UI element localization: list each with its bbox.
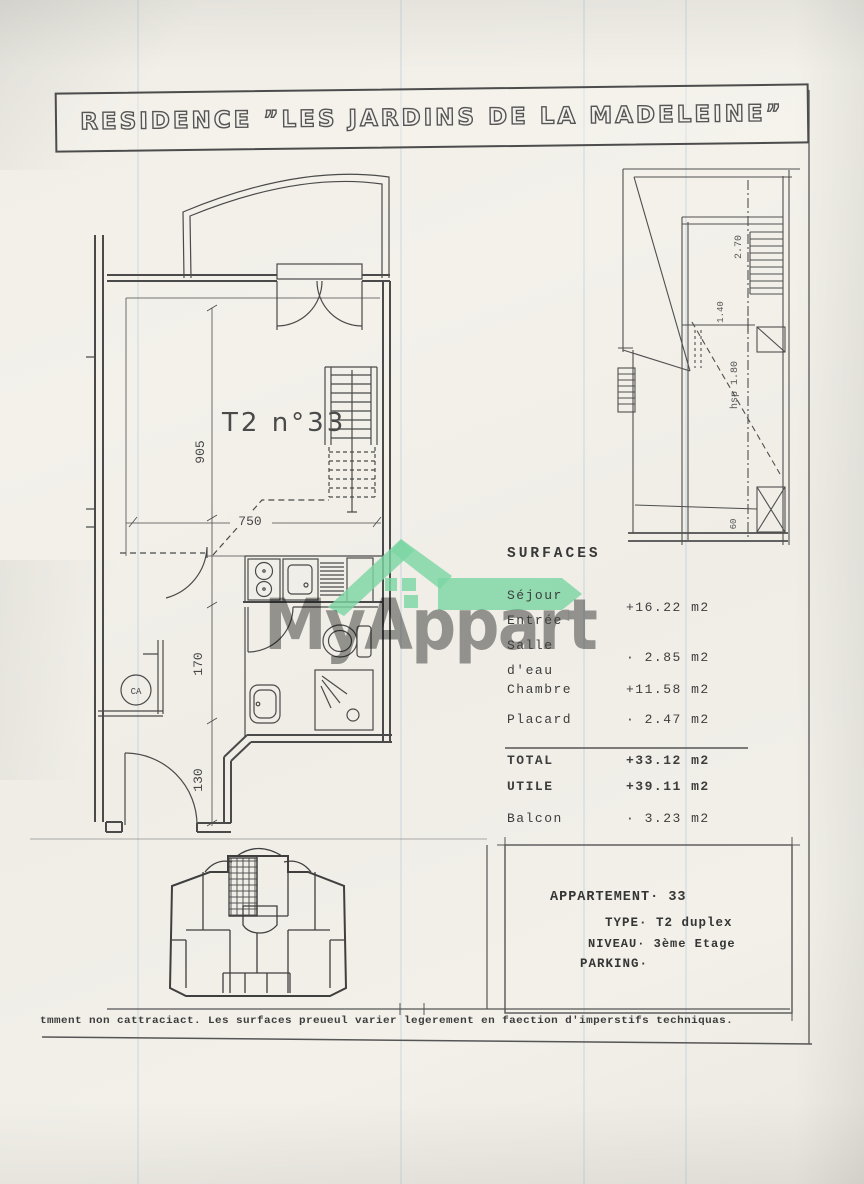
surface-row-label: Salle bbox=[507, 638, 554, 653]
upper-plan-dimensions: 2.70 1.40 hsp 1.80 60 bbox=[716, 235, 745, 529]
apartment-number-row: APPARTEMENT· 33 bbox=[550, 890, 687, 905]
main-plan-dimensions: 750 905 170 130 CA bbox=[131, 440, 272, 791]
total-row-value: +39.11 m2 bbox=[626, 779, 710, 794]
key-plan bbox=[170, 849, 346, 997]
total-row-label: TOTAL bbox=[507, 753, 554, 768]
water-heater-label: CA bbox=[131, 687, 142, 697]
surface-row-value: · 2.85 m2 bbox=[626, 650, 710, 665]
surface-row-label: Chambre bbox=[507, 682, 572, 697]
surface-row-label: Placard bbox=[507, 712, 572, 727]
type-label: TYPE· bbox=[605, 916, 648, 930]
total-row-label: UTILE bbox=[507, 779, 554, 794]
dim-130: 130 bbox=[191, 768, 206, 791]
upper-plan bbox=[618, 169, 800, 545]
parking-label: PARKING· bbox=[580, 957, 648, 971]
surface-row-value: +11.58 m2 bbox=[626, 682, 710, 697]
main-plan bbox=[86, 174, 392, 832]
apartment-value: 33 bbox=[668, 890, 686, 905]
apartment-label: APPARTEMENT· bbox=[550, 890, 659, 905]
total-row-value: +33.12 m2 bbox=[626, 753, 710, 768]
dim-905: 905 bbox=[193, 440, 208, 463]
title-banner: RESIDENCE ”LES JARDINS DE LA MADELEINE” bbox=[55, 83, 810, 152]
surface-row-value: +16.22 m2 bbox=[626, 600, 710, 615]
total-row-value: · 3.23 m2 bbox=[626, 811, 710, 826]
dim-hsp-180: hsp 1.80 bbox=[729, 361, 741, 409]
surface-row-value: · 2.47 m2 bbox=[626, 712, 710, 727]
scanned-floorplan-page: 750 905 170 130 CA bbox=[0, 0, 864, 1184]
level-label: NIVEAU· bbox=[588, 937, 645, 951]
total-row-label: Balcon bbox=[507, 811, 563, 826]
type-value: T2 duplex bbox=[656, 916, 733, 930]
surfaces-heading: SURFACES bbox=[507, 546, 601, 562]
dim-140: 1.40 bbox=[716, 301, 726, 323]
dim-750: 750 bbox=[238, 514, 261, 529]
residence-title: RESIDENCE ”LES JARDINS DE LA MADELEINE” bbox=[80, 101, 784, 136]
apartment-type-row: TYPE· T2 duplex bbox=[605, 916, 733, 930]
surface-row-label: Séjour bbox=[507, 588, 563, 603]
surface-row-label: d'eau bbox=[507, 663, 554, 678]
dim-60: 60 bbox=[729, 519, 739, 530]
unit-label: T2 n°33 bbox=[222, 408, 346, 438]
level-value: 3ème Etage bbox=[654, 937, 736, 951]
surface-row-label: Entrée bbox=[507, 613, 563, 628]
dim-270: 2.70 bbox=[734, 235, 745, 259]
dim-170: 170 bbox=[191, 652, 206, 675]
footer-disclaimer: tmment non cattraciact. Les surfaces pre… bbox=[40, 1015, 733, 1027]
apartment-level-row: NIVEAU· 3ème Etage bbox=[588, 937, 736, 951]
apartment-parking-row: PARKING· bbox=[580, 957, 648, 971]
